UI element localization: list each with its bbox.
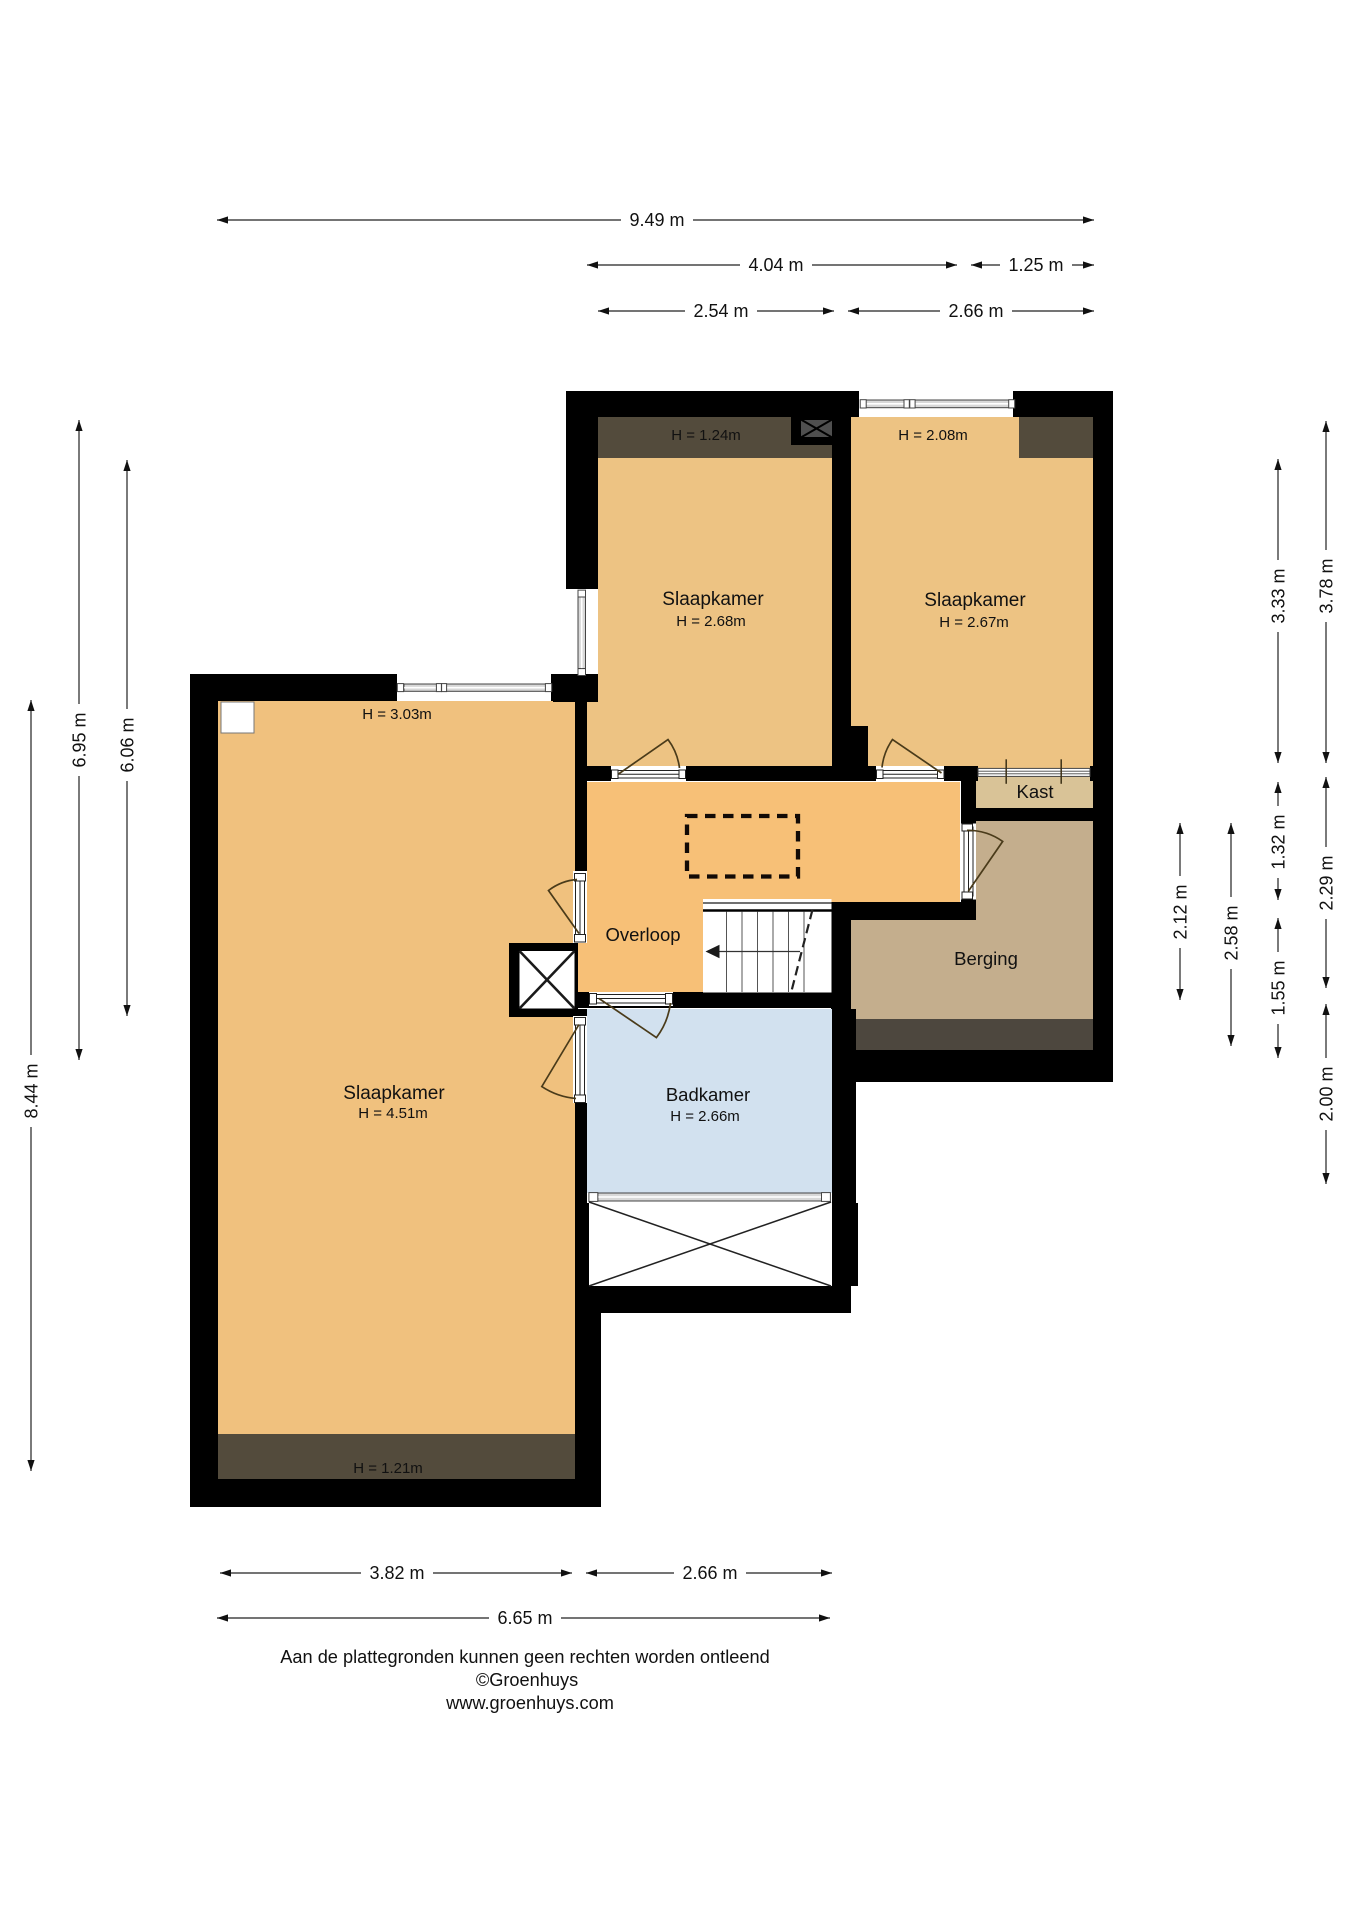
svg-text:9.49 m: 9.49 m [629, 210, 684, 230]
svg-text:H = 3.03m: H = 3.03m [362, 706, 432, 723]
svg-text:6.06 m: 6.06 m [118, 717, 138, 772]
svg-text:H = 2.67m: H = 2.67m [939, 614, 1009, 631]
svg-text:2.29 m: 2.29 m [1317, 855, 1337, 910]
svg-text:8.44 m: 8.44 m [22, 1063, 42, 1118]
svg-text:Berging: Berging [954, 948, 1018, 969]
svg-text:6.95 m: 6.95 m [70, 712, 90, 767]
svg-text:1.25 m: 1.25 m [1008, 255, 1063, 275]
svg-text:H = 4.51m: H = 4.51m [358, 1105, 428, 1122]
svg-text:Slaapkamer: Slaapkamer [662, 589, 764, 610]
svg-text:Aan de plattegronden kunnen ge: Aan de plattegronden kunnen geen rechten… [280, 1647, 769, 1667]
svg-text:3.33 m: 3.33 m [1269, 568, 1289, 623]
svg-text:4.04 m: 4.04 m [748, 255, 803, 275]
svg-text:Overloop: Overloop [605, 924, 680, 945]
svg-text:3.82 m: 3.82 m [369, 1563, 424, 1583]
svg-text:Slaapkamer: Slaapkamer [343, 1083, 445, 1104]
svg-text:H = 1.21m: H = 1.21m [353, 1460, 423, 1477]
svg-text:2.54 m: 2.54 m [693, 301, 748, 321]
svg-text:H = 1.24m: H = 1.24m [671, 427, 741, 444]
svg-text:2.66 m: 2.66 m [948, 301, 1003, 321]
svg-text:www.groenhuys.com: www.groenhuys.com [445, 1693, 614, 1713]
svg-text:©Groenhuys: ©Groenhuys [476, 1670, 578, 1690]
svg-text:2.58 m: 2.58 m [1222, 905, 1242, 960]
svg-text:1.55 m: 1.55 m [1269, 960, 1289, 1015]
svg-text:6.65 m: 6.65 m [497, 1608, 552, 1628]
svg-text:H = 2.68m: H = 2.68m [676, 613, 746, 630]
svg-text:H = 2.66m: H = 2.66m [670, 1108, 740, 1125]
svg-text:Kast: Kast [1016, 781, 1053, 802]
svg-text:2.00 m: 2.00 m [1317, 1066, 1337, 1121]
svg-text:1.32 m: 1.32 m [1269, 814, 1289, 869]
svg-text:2.66 m: 2.66 m [682, 1563, 737, 1583]
svg-text:Badkamer: Badkamer [666, 1084, 750, 1105]
svg-text:3.78 m: 3.78 m [1317, 558, 1337, 613]
svg-text:Slaapkamer: Slaapkamer [924, 590, 1026, 611]
svg-text:2.12 m: 2.12 m [1171, 884, 1191, 939]
svg-text:H = 2.08m: H = 2.08m [898, 427, 968, 444]
